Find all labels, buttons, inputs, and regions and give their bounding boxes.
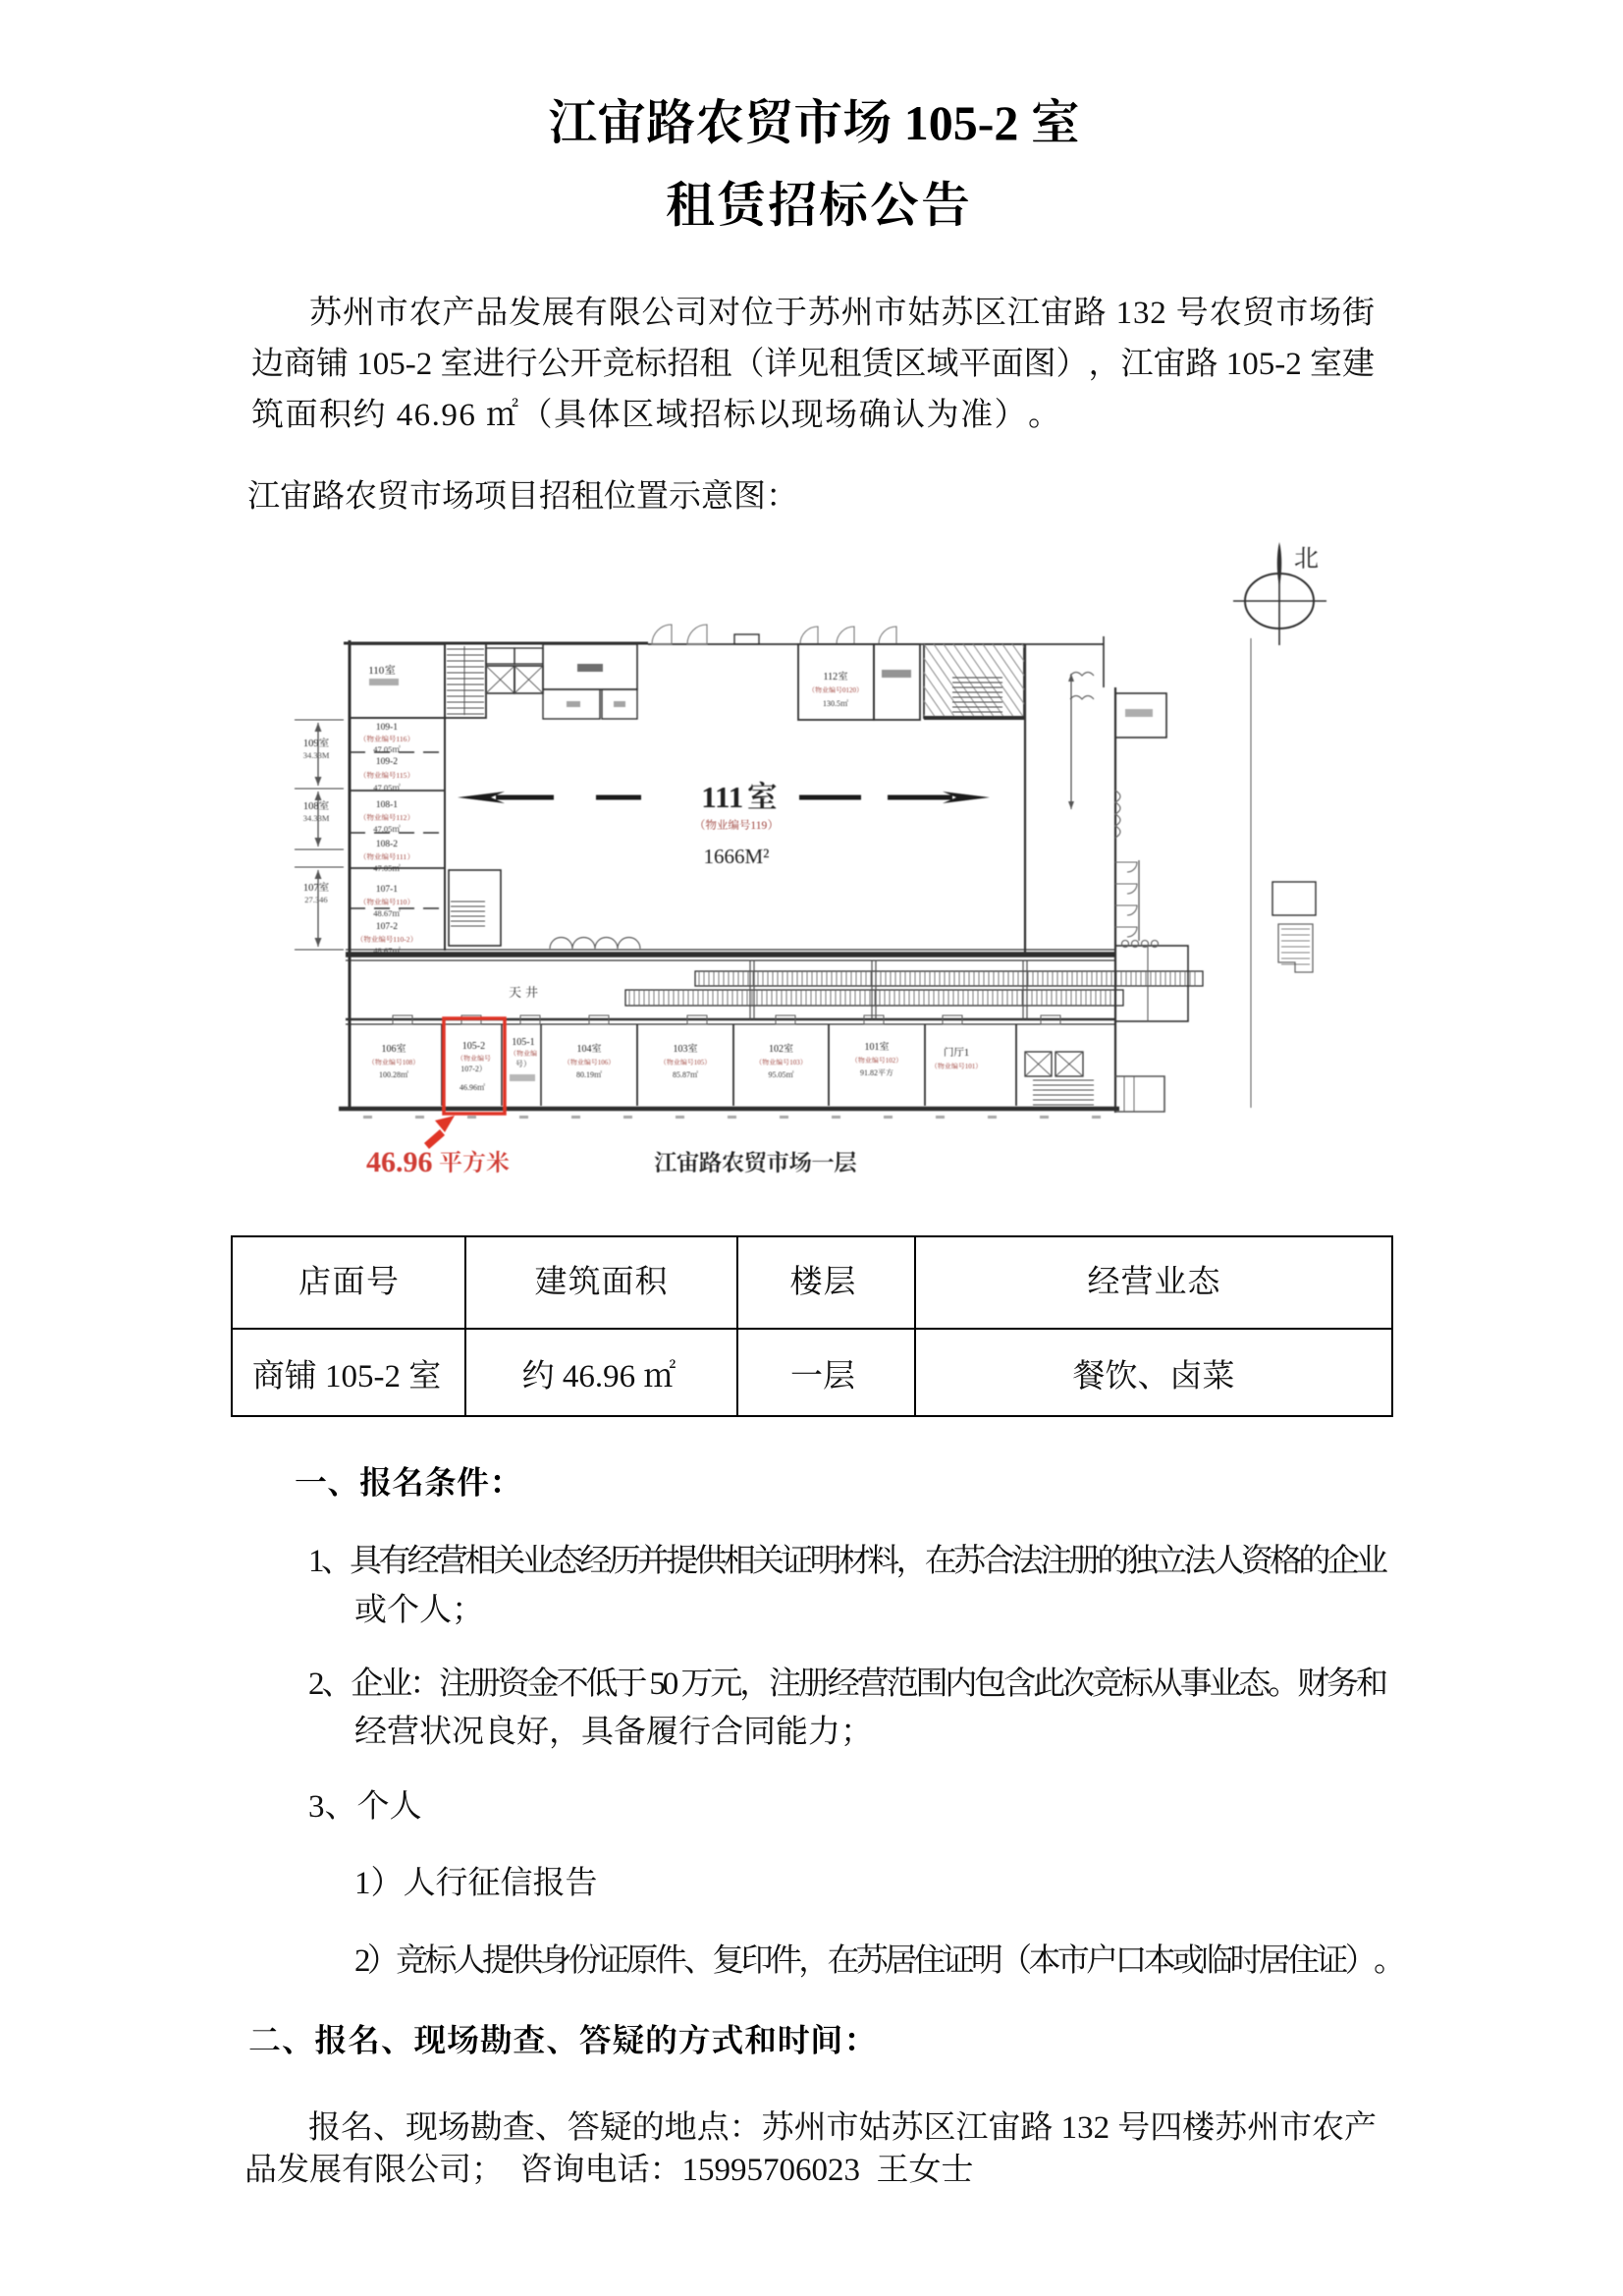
svg-text:48.67: 48.67	[373, 946, 392, 956]
svg-text:46.96: 46.96	[366, 1146, 433, 1178]
svg-text:111: 111	[396, 852, 406, 861]
svg-text:91.82: 91.82	[860, 1068, 878, 1077]
svg-text:3: 3	[308, 1789, 325, 1825]
svg-text:110: 110	[396, 898, 406, 906]
svg-text:85.87: 85.87	[673, 1070, 690, 1079]
svg-text:109: 109	[303, 738, 319, 749]
svg-text:1666M²: 1666M²	[704, 845, 770, 868]
svg-text:103: 103	[674, 1044, 688, 1055]
svg-text:48.67: 48.67	[373, 908, 392, 918]
svg-text:1: 1	[964, 1048, 969, 1059]
svg-text:106: 106	[598, 1059, 609, 1066]
svg-text:1: 1	[308, 1544, 323, 1579]
svg-text:107: 107	[303, 883, 319, 894]
svg-text:116: 116	[396, 735, 406, 743]
svg-text:108: 108	[403, 1059, 413, 1066]
svg-text:50: 50	[649, 1667, 677, 1702]
svg-text:105-2: 105-2	[325, 1359, 401, 1394]
svg-text:107-2: 107-2	[460, 1065, 479, 1073]
svg-text:106: 106	[382, 1044, 397, 1055]
svg-text:107-1: 107-1	[376, 885, 398, 895]
svg-text:110: 110	[368, 665, 385, 677]
svg-text:34.33M: 34.33M	[303, 750, 330, 760]
svg-text:27.346: 27.346	[304, 895, 327, 904]
svg-text:111: 111	[701, 780, 743, 814]
svg-text:46.96: 46.96	[563, 1359, 635, 1394]
svg-text:104: 104	[577, 1044, 592, 1055]
svg-text:107-2: 107-2	[376, 922, 398, 932]
svg-text:80.19: 80.19	[576, 1070, 594, 1079]
svg-text:105-2: 105-2	[462, 1041, 485, 1052]
svg-text:102: 102	[769, 1044, 784, 1055]
svg-text:108-1: 108-1	[376, 800, 398, 810]
svg-text:105-2: 105-2	[904, 95, 1019, 150]
svg-text:46.96: 46.96	[397, 398, 477, 433]
svg-text:105-2: 105-2	[1226, 347, 1302, 382]
svg-text:105-2: 105-2	[356, 347, 432, 382]
svg-text:115: 115	[396, 771, 406, 780]
svg-text:100.28: 100.28	[379, 1070, 401, 1079]
svg-text:105-1: 105-1	[512, 1037, 534, 1048]
svg-text:1: 1	[354, 1866, 371, 1901]
svg-text:15995706023: 15995706023	[682, 2153, 861, 2188]
svg-text:110-2: 110-2	[393, 935, 409, 944]
svg-text:105: 105	[694, 1059, 705, 1066]
svg-text:0120: 0120	[842, 686, 857, 694]
svg-text:109-1: 109-1	[376, 723, 398, 733]
svg-text:119: 119	[750, 820, 767, 832]
svg-text:132: 132	[1061, 2110, 1110, 2146]
svg-text:112: 112	[824, 672, 839, 683]
svg-text:46.96: 46.96	[460, 1083, 477, 1092]
svg-text:95.05: 95.05	[769, 1070, 786, 1079]
svg-text:102: 102	[886, 1057, 896, 1065]
svg-text:108: 108	[303, 801, 319, 812]
svg-text:108-2: 108-2	[376, 840, 398, 849]
svg-text:101: 101	[865, 1042, 880, 1053]
svg-text:34.33M: 34.33M	[303, 813, 330, 823]
svg-text:112: 112	[396, 813, 406, 822]
svg-text:2: 2	[354, 1943, 369, 1979]
svg-text:103: 103	[789, 1059, 800, 1066]
svg-text:130.5: 130.5	[823, 699, 840, 708]
svg-text:2: 2	[308, 1667, 323, 1702]
svg-text:132: 132	[1116, 296, 1167, 331]
svg-text:101: 101	[965, 1063, 976, 1070]
svg-text:109-2: 109-2	[376, 757, 398, 767]
